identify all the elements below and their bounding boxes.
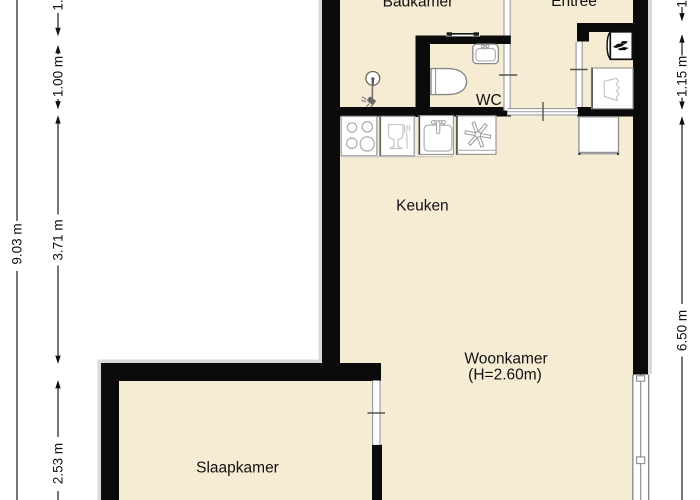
svg-text:(H=2.60m): (H=2.60m) <box>468 367 542 384</box>
svg-text:Slaapkamer: Slaapkamer <box>196 460 279 477</box>
svg-text:3.71 m: 3.71 m <box>51 219 66 260</box>
svg-text:1.15 m: 1.15 m <box>675 56 690 97</box>
svg-text:9.03 m: 9.03 m <box>10 223 25 264</box>
svg-text:1.35 m: 1.35 m <box>675 0 690 8</box>
svg-text:Badkamer: Badkamer <box>383 0 454 11</box>
svg-text:Keuken: Keuken <box>396 198 449 215</box>
svg-text:Woonkamer: Woonkamer <box>464 351 547 368</box>
svg-text:WC: WC <box>476 92 502 109</box>
svg-text:1.15 m: 1.15 m <box>51 0 66 11</box>
svg-text:1.00 m: 1.00 m <box>51 56 66 97</box>
svg-text:2.53 m: 2.53 m <box>51 443 66 484</box>
svg-text:6.50 m: 6.50 m <box>675 310 690 351</box>
svg-text:Entree: Entree <box>551 0 597 10</box>
